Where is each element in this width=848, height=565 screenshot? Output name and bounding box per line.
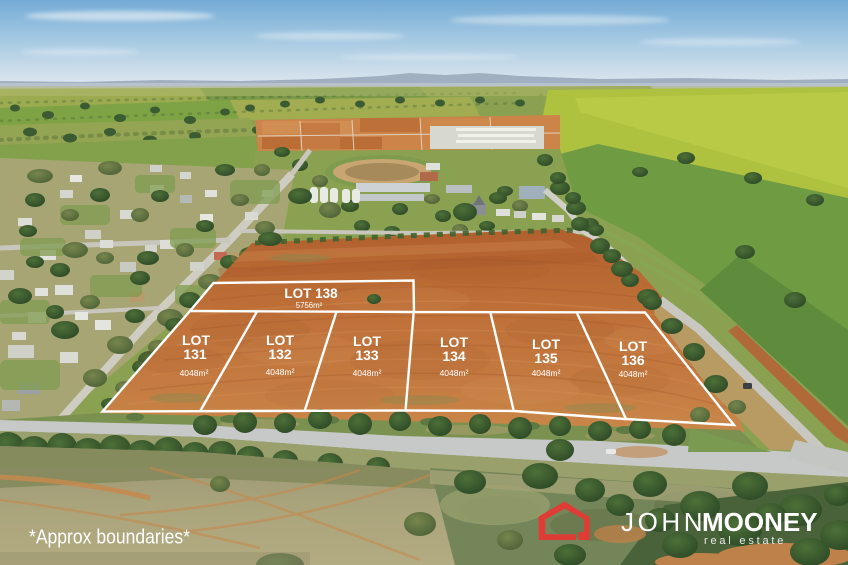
svg-text:4048m²: 4048m² [532, 368, 561, 378]
svg-text:132: 132 [268, 346, 292, 362]
svg-text:4048m²: 4048m² [180, 368, 209, 378]
svg-text:5756m²: 5756m² [296, 301, 323, 310]
svg-text:136: 136 [621, 352, 645, 368]
svg-text:LOT 138: LOT 138 [284, 286, 338, 301]
svg-text:135: 135 [534, 350, 558, 366]
svg-text:133: 133 [355, 347, 379, 363]
svg-text:*Approx boundaries*: *Approx boundaries* [29, 526, 190, 549]
svg-text:131: 131 [183, 346, 207, 362]
svg-text:MOONEY: MOONEY [702, 507, 818, 537]
svg-text:134: 134 [442, 348, 466, 364]
svg-text:JOHN: JOHN [621, 507, 706, 537]
svg-text:4048m²: 4048m² [440, 368, 469, 378]
svg-text:4048m²: 4048m² [619, 369, 648, 379]
svg-text:4048m²: 4048m² [353, 368, 382, 378]
svg-text:4048m²: 4048m² [266, 367, 295, 377]
svg-text:real estate: real estate [704, 535, 786, 547]
